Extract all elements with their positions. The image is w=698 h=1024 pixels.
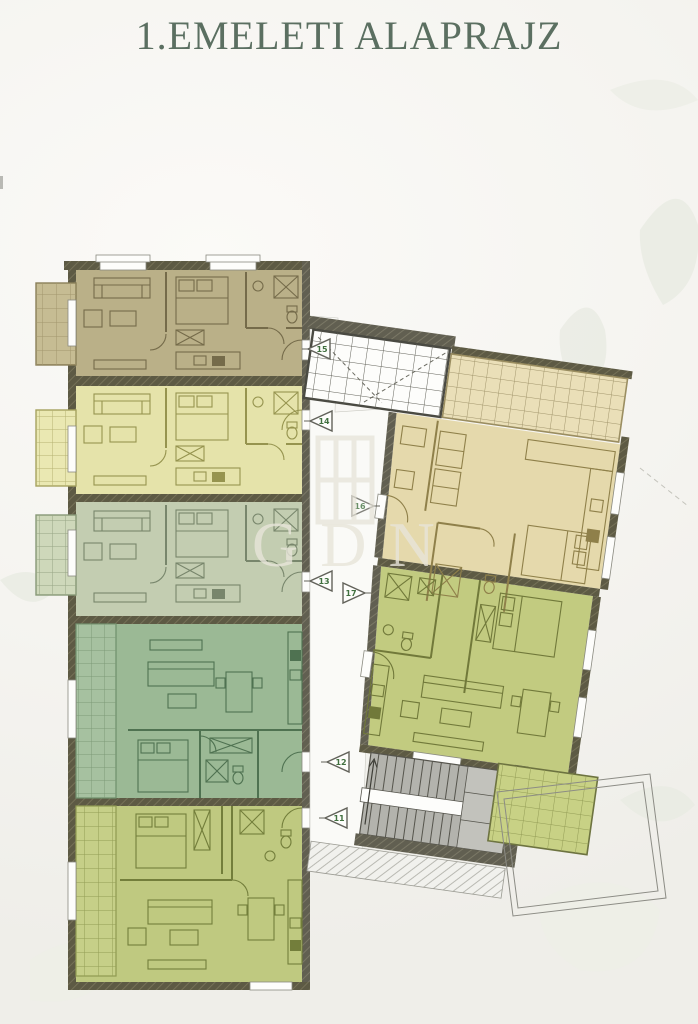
svg-text:17: 17 [345,589,356,598]
loggia-unit-11 [76,806,116,976]
window [68,426,76,472]
window-sill [206,255,260,262]
party-wall [76,376,302,386]
left-apartment-block [36,255,310,990]
svg-text:12: 12 [335,758,346,767]
entry-door-unit-12 [302,752,310,772]
window [68,300,76,346]
window [250,982,292,990]
party-wall [76,798,302,806]
window [68,862,76,920]
window-sill [96,255,150,262]
watermark-text: GDN [252,509,457,580]
balcony-unit-17 [488,764,598,855]
entry-door-unit-14 [302,410,310,430]
eaves-line [640,468,688,506]
edge-artifact [0,176,3,189]
window [68,530,76,576]
unit-17-area [356,566,593,773]
party-wall [76,494,302,502]
floorplan-canvas: 15 14 16 13 17 12 11 GDN [0,0,698,1024]
loggia-unit-12 [76,624,116,798]
party-wall [76,616,302,624]
svg-text:15: 15 [316,345,328,354]
entry-door-unit-11 [302,808,310,828]
svg-text:11: 11 [333,814,345,823]
window [68,680,76,738]
svg-text:14: 14 [318,417,330,426]
